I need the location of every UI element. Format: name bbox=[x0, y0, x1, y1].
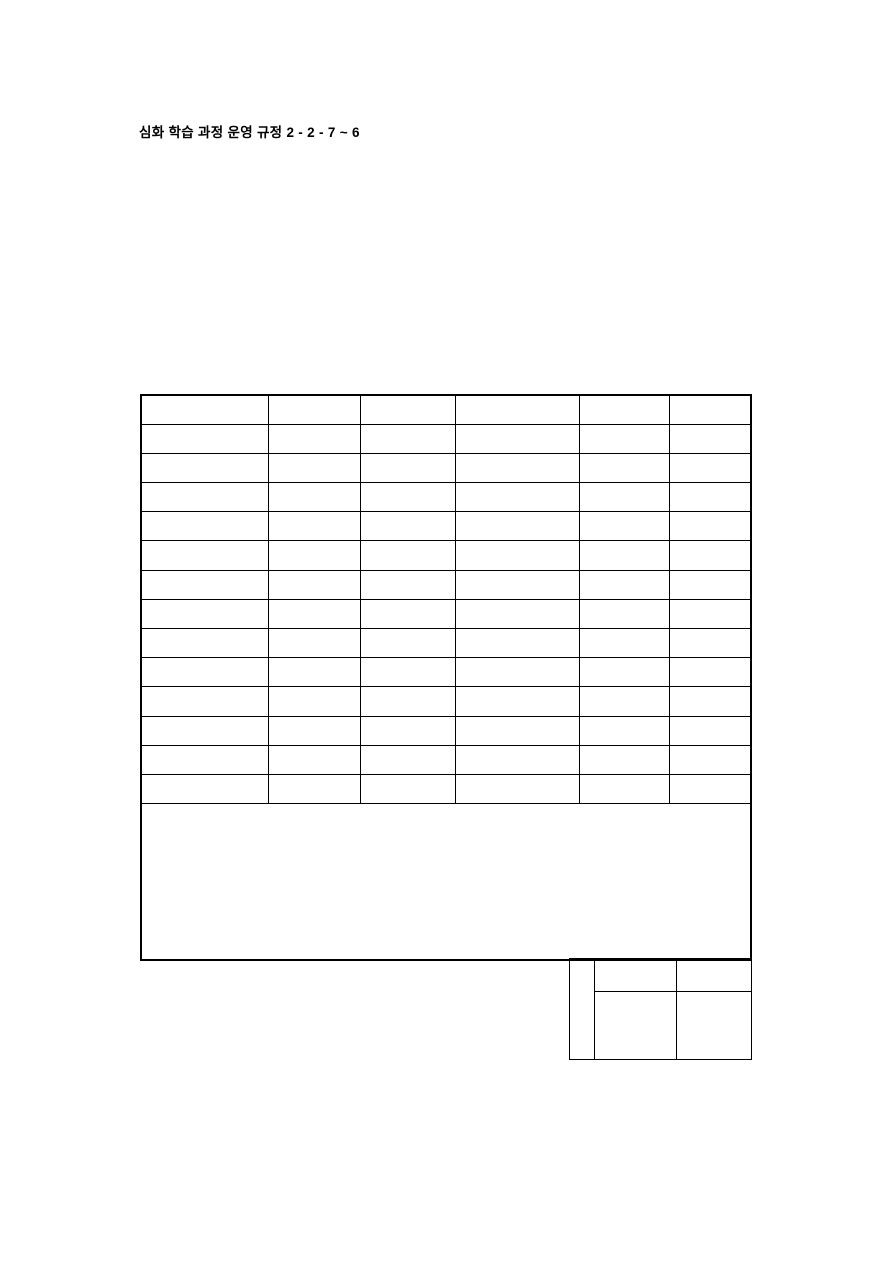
table-cell bbox=[141, 395, 268, 424]
table-cell bbox=[455, 541, 579, 570]
table-cell bbox=[579, 541, 669, 570]
table-row bbox=[141, 658, 751, 687]
table-cell bbox=[455, 599, 579, 628]
table-cell bbox=[360, 395, 455, 424]
table-cell bbox=[669, 716, 751, 745]
main-table-body bbox=[141, 395, 751, 804]
table-cell bbox=[579, 716, 669, 745]
table-cell bbox=[360, 658, 455, 687]
table-cell bbox=[579, 395, 669, 424]
table-cell bbox=[669, 658, 751, 687]
table-cell bbox=[141, 774, 268, 803]
table-cell bbox=[360, 541, 455, 570]
table-row bbox=[141, 774, 751, 803]
table-cell bbox=[360, 716, 455, 745]
table-cell bbox=[141, 483, 268, 512]
table-cell bbox=[669, 599, 751, 628]
table-cell bbox=[579, 483, 669, 512]
document-header-text: 심화 학습 과정 운영 규정 2 - 2 - 7 ~ 6 bbox=[139, 121, 360, 141]
table-cell bbox=[669, 424, 751, 453]
table-cell bbox=[268, 774, 360, 803]
table-cell bbox=[579, 570, 669, 599]
table-cell bbox=[669, 453, 751, 482]
table-cell bbox=[360, 424, 455, 453]
approval-cell bbox=[677, 992, 752, 1060]
table-cell bbox=[579, 512, 669, 541]
table-cell bbox=[669, 629, 751, 658]
table-cell bbox=[141, 687, 268, 716]
table-cell bbox=[579, 629, 669, 658]
table-cell bbox=[455, 453, 579, 482]
table-cell bbox=[455, 687, 579, 716]
table-row bbox=[141, 599, 751, 628]
table-cell bbox=[579, 424, 669, 453]
table-cell bbox=[360, 483, 455, 512]
table-row bbox=[141, 745, 751, 774]
table-cell bbox=[141, 629, 268, 658]
table-cell bbox=[579, 658, 669, 687]
table-cell bbox=[455, 483, 579, 512]
table-cell bbox=[268, 629, 360, 658]
document-page: 심화 학습 과정 운영 규정 2 - 2 - 7 ~ 6 bbox=[0, 0, 893, 1263]
table-row bbox=[141, 424, 751, 453]
table-row bbox=[141, 716, 751, 745]
table-cell bbox=[141, 658, 268, 687]
table-row bbox=[141, 395, 751, 424]
table-cell bbox=[669, 512, 751, 541]
table-cell bbox=[669, 541, 751, 570]
table-cell bbox=[455, 629, 579, 658]
table-cell bbox=[455, 745, 579, 774]
table-cell bbox=[141, 570, 268, 599]
table-cell bbox=[669, 687, 751, 716]
table-cell bbox=[455, 658, 579, 687]
table-cell bbox=[455, 512, 579, 541]
table-row bbox=[141, 629, 751, 658]
approval-box-table bbox=[569, 958, 752, 1060]
table-row bbox=[141, 570, 751, 599]
table-cell bbox=[360, 629, 455, 658]
table-cell bbox=[579, 774, 669, 803]
table-cell bbox=[360, 512, 455, 541]
approval-cell bbox=[677, 959, 752, 992]
table-cell bbox=[268, 570, 360, 599]
approval-row-top bbox=[570, 959, 752, 992]
table-row bbox=[141, 483, 751, 512]
table-row bbox=[141, 541, 751, 570]
approval-side-cell bbox=[570, 959, 595, 1060]
table-cell bbox=[268, 453, 360, 482]
table-cell bbox=[141, 599, 268, 628]
table-cell bbox=[360, 453, 455, 482]
table-cell bbox=[579, 687, 669, 716]
approval-cell bbox=[595, 992, 677, 1060]
table-cell bbox=[268, 716, 360, 745]
merged-row bbox=[141, 804, 751, 960]
table-cell bbox=[268, 395, 360, 424]
table-cell bbox=[669, 483, 751, 512]
table-cell bbox=[141, 541, 268, 570]
table-cell bbox=[268, 541, 360, 570]
table-cell bbox=[669, 395, 751, 424]
table-cell bbox=[268, 599, 360, 628]
table-cell bbox=[141, 716, 268, 745]
table-row bbox=[141, 687, 751, 716]
table-cell bbox=[579, 745, 669, 774]
table-row bbox=[141, 512, 751, 541]
table-cell bbox=[669, 745, 751, 774]
table-cell bbox=[268, 687, 360, 716]
approval-cell bbox=[595, 959, 677, 992]
table-cell bbox=[579, 453, 669, 482]
main-table-footer bbox=[141, 804, 751, 960]
table-cell bbox=[141, 424, 268, 453]
table-cell bbox=[141, 512, 268, 541]
merged-bottom-cell bbox=[141, 804, 751, 960]
table-cell bbox=[579, 599, 669, 628]
table-row bbox=[141, 453, 751, 482]
table-cell bbox=[455, 570, 579, 599]
table-cell bbox=[455, 774, 579, 803]
main-form-table bbox=[140, 394, 752, 961]
table-cell bbox=[141, 745, 268, 774]
table-cell bbox=[268, 658, 360, 687]
table-cell bbox=[455, 716, 579, 745]
table-cell bbox=[141, 453, 268, 482]
table-cell bbox=[268, 424, 360, 453]
table-cell bbox=[360, 687, 455, 716]
approval-row-bottom bbox=[570, 992, 752, 1060]
table-cell bbox=[268, 745, 360, 774]
table-cell bbox=[268, 512, 360, 541]
table-cell bbox=[360, 570, 455, 599]
table-cell bbox=[360, 774, 455, 803]
table-cell bbox=[455, 395, 579, 424]
table-cell bbox=[455, 424, 579, 453]
table-cell bbox=[669, 570, 751, 599]
table-cell bbox=[360, 599, 455, 628]
table-cell bbox=[669, 774, 751, 803]
table-cell bbox=[268, 483, 360, 512]
table-cell bbox=[360, 745, 455, 774]
